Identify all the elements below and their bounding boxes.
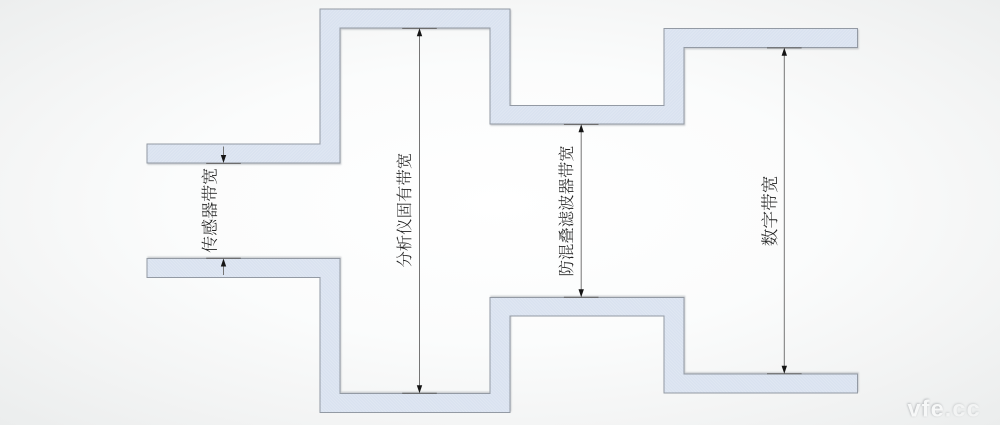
svg-text:vfe.cc: vfe.cc — [908, 396, 981, 422]
